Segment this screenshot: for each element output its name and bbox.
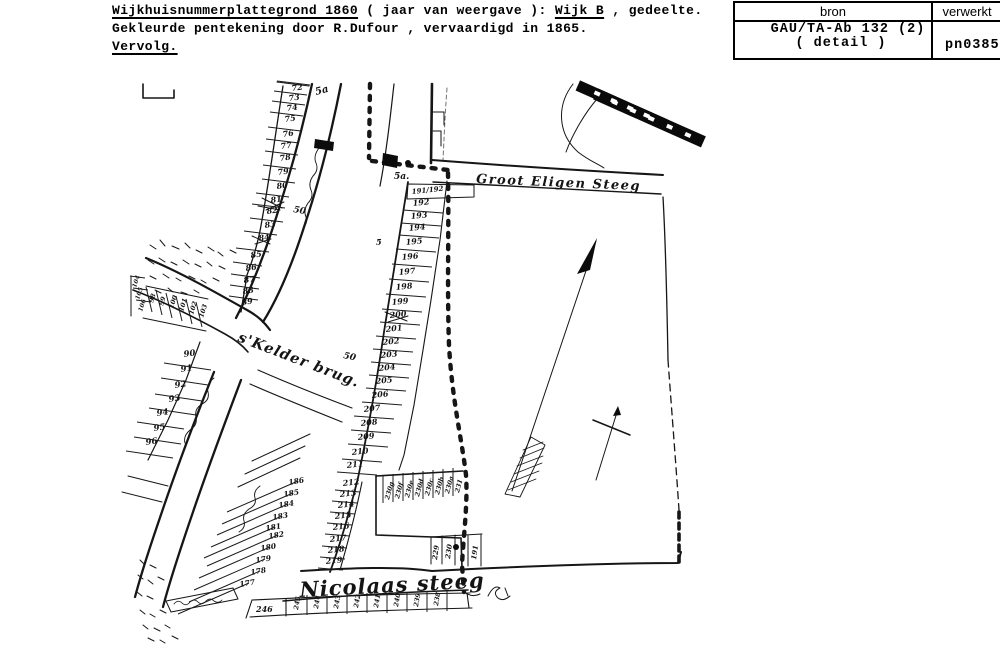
- parcel-number: 177: [239, 577, 257, 589]
- parcel-number: 96: [145, 436, 158, 448]
- parcel-number: 197: [398, 265, 416, 277]
- parcel-number: 242: [352, 593, 362, 609]
- parcel-number: 213: [338, 487, 357, 499]
- building-block-2: [382, 153, 398, 168]
- parcel-number: 245: [292, 595, 302, 611]
- parcel-number: 90: [183, 348, 196, 360]
- label-parallelogram: [166, 588, 238, 612]
- parcel-number: 214: [336, 498, 355, 510]
- parcel-number: 191/192: [411, 184, 444, 196]
- parcel-number: 207: [362, 402, 381, 414]
- parcel-number-246: 246: [255, 604, 273, 614]
- parcel-number: 199: [391, 295, 409, 307]
- bridge-symbol: [562, 80, 706, 168]
- parcel-number: 94: [156, 407, 169, 419]
- north-arrow: [505, 238, 597, 497]
- garden-scatter-upper: [148, 240, 236, 294]
- cursive-mark: [488, 587, 510, 600]
- parcel-number: 185: [283, 487, 300, 499]
- parcel-number: 103: [197, 303, 209, 319]
- parcel-number: 81: [270, 194, 282, 205]
- parcel-number: 244: [312, 594, 322, 610]
- arrow-fletching: [505, 437, 545, 497]
- historic-parcel-map: Groot Eligen Steeg Nicolaas steeg s'Keld…: [0, 0, 1000, 649]
- parcel-number: 218: [326, 543, 345, 555]
- parcel-number: 219: [324, 554, 343, 566]
- parcel-number: 202: [381, 335, 400, 347]
- parcel-number: 193: [410, 209, 428, 221]
- parcel-number: 77: [280, 139, 293, 151]
- cross-arrow: [593, 406, 630, 480]
- parcel-number: 206: [370, 388, 389, 400]
- boundary-blob: [405, 160, 411, 166]
- parcel-number: 89: [241, 295, 254, 307]
- road-mark-50-upper: 50: [292, 205, 307, 217]
- parcel-strip-left-top: 7273747576777879808182838485: [236, 81, 310, 260]
- parcel-number: 205: [374, 374, 393, 386]
- parcel-divider: [337, 472, 377, 475]
- parcel-number: 195: [405, 235, 423, 247]
- road-mark-5a-top: 5a: [314, 84, 330, 98]
- parcel-number: 231: [453, 478, 465, 494]
- road-mark-5a-mid: 5a.: [394, 172, 409, 182]
- parcel-number: 217: [328, 532, 347, 544]
- parcel-divider: [178, 583, 249, 614]
- parcel-number: 91: [180, 363, 193, 375]
- parcel-number: 198: [395, 280, 413, 292]
- parcel-number: 86: [245, 261, 258, 273]
- garden-scatter-lower: [137, 560, 238, 643]
- parcel-number: 204: [377, 361, 396, 373]
- parcel-number: 216: [331, 520, 350, 532]
- parcel-number: 200: [388, 308, 407, 320]
- cross-arrow-head: [613, 406, 621, 416]
- parcel-number: 183: [272, 510, 289, 522]
- parcel-number: 83: [264, 218, 277, 230]
- parcel-number: 229: [430, 544, 441, 561]
- parcel-number: 208: [359, 416, 378, 428]
- parcel-number: 95: [153, 422, 166, 434]
- parcel-number: 186: [288, 475, 306, 487]
- parcel-number: 238: [432, 591, 442, 607]
- corner-mark: [143, 84, 174, 98]
- parcel-number: 93: [168, 393, 181, 405]
- parcel-number: 75: [284, 112, 297, 124]
- parcel-number: 84: [258, 231, 271, 243]
- parcel-strip-diagonal: 186185184183181182180179178177: [178, 475, 306, 614]
- parcel-number: 192: [412, 196, 430, 208]
- parcel-number: 241: [372, 594, 382, 610]
- parcel-number: 78: [279, 151, 292, 163]
- parcel-number: 87: [243, 273, 256, 285]
- street-label-nicolaas-steeg: Nicolaas steeg: [298, 567, 485, 602]
- parcel-number: 196: [401, 250, 419, 262]
- parcel-number: 203: [379, 348, 398, 360]
- building-block-1: [314, 139, 334, 151]
- block-right-boundary: [663, 197, 679, 563]
- parcel-number: 88: [242, 284, 255, 296]
- parcel-number: 215: [333, 509, 352, 521]
- parcel-number: 79: [277, 165, 290, 177]
- parcel-number: 85: [250, 248, 263, 260]
- parcel-number: 211: [345, 458, 364, 470]
- parcel-numbers: 7273747576777879808182838485868788899091…: [126, 81, 480, 615]
- parcel-number: 191: [469, 545, 480, 561]
- parcel-strip-left-low: 90919293949596: [126, 348, 211, 458]
- parcel-strip-left-mid: 86878889: [229, 261, 262, 307]
- road-mark-50-lower: 50: [342, 351, 357, 364]
- street-label-groot-eligen-steeg: Groot Eligen Steeg: [476, 172, 641, 194]
- parcel-number: 74: [286, 101, 299, 113]
- street-second: [380, 84, 447, 186]
- parcel-number: 182: [268, 529, 285, 541]
- parcel-number: 92: [174, 379, 187, 391]
- parcel-number: 243: [332, 594, 342, 610]
- parcel-number: 209: [356, 430, 375, 442]
- parcel-number: 212: [341, 476, 360, 488]
- parcel-number: 76: [282, 127, 295, 139]
- parcel-number: 179: [255, 553, 273, 565]
- road-mark-5-mid: 5: [376, 237, 382, 247]
- parcel-number: 184: [278, 498, 295, 510]
- parcel-number: 178: [250, 565, 268, 577]
- arrow-head: [577, 238, 597, 274]
- parcel-number: 210: [350, 445, 369, 457]
- parcel-number: 80: [276, 179, 289, 191]
- parcel-number: 194: [408, 221, 426, 233]
- parcel-number: 240: [392, 592, 402, 608]
- parcel-number: 82: [266, 204, 279, 216]
- parcel-number: 230: [443, 543, 454, 560]
- parcel-number: 180: [260, 541, 278, 553]
- parcel-number: 239: [412, 592, 422, 608]
- parcel-number: 201: [384, 322, 403, 334]
- street-notches: [433, 112, 444, 146]
